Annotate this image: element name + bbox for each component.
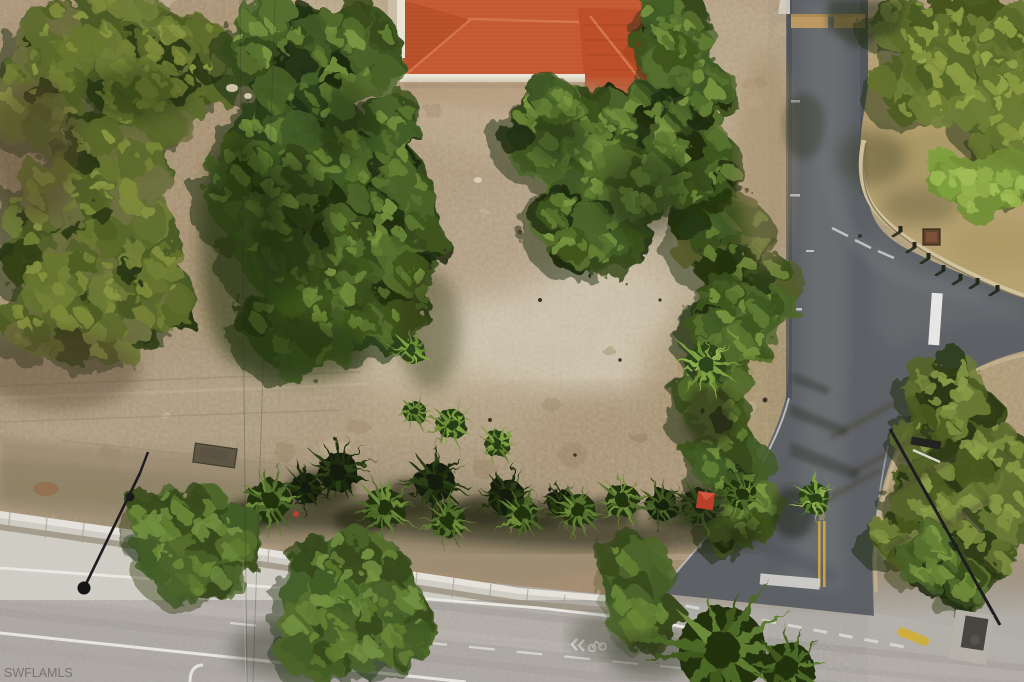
svg-text:SWFLAMLS: SWFLAMLS [4, 666, 73, 680]
